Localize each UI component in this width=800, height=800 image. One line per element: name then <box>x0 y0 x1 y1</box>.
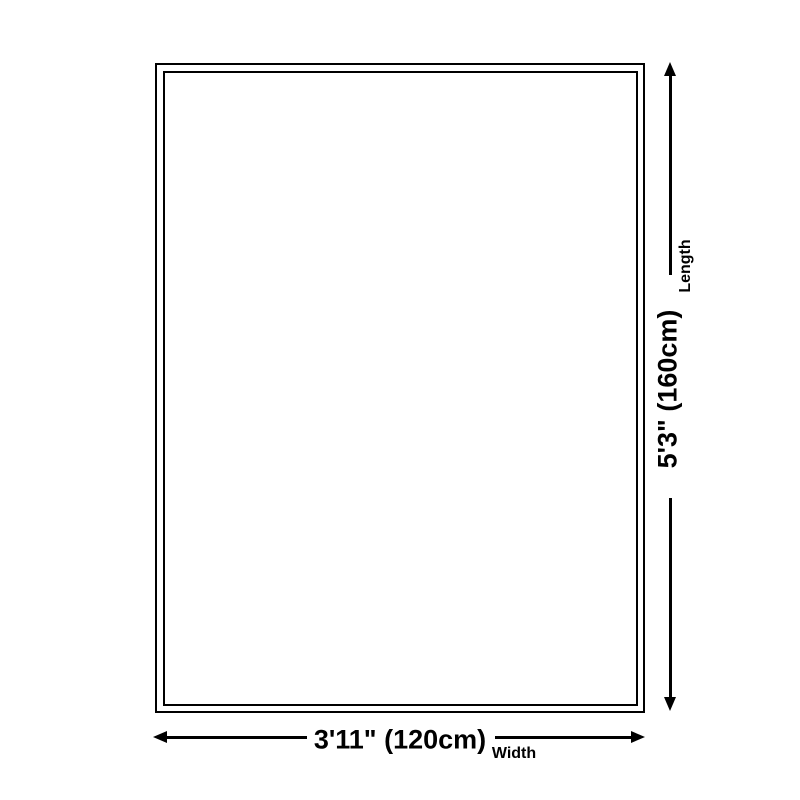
length-dimension-line-bottom <box>669 498 672 697</box>
length-label: Length <box>677 239 695 292</box>
rug-dimension-diagram: Length 5'3" (160cm) 3'11" (120cm) Width <box>0 0 800 800</box>
width-dimension-line-right <box>495 736 632 739</box>
arrow-right-icon <box>631 731 645 743</box>
arrow-left-icon <box>153 731 167 743</box>
width-value: 3'11" (120cm) <box>314 725 486 756</box>
arrow-down-icon <box>664 697 676 711</box>
width-label: Width <box>492 745 536 763</box>
length-dimension-line-top <box>669 75 672 275</box>
rug-outline-inner <box>163 71 638 706</box>
length-value: 5'3" (160cm) <box>653 310 684 469</box>
arrow-up-icon <box>664 62 676 76</box>
rug-outline-outer <box>155 63 645 713</box>
width-dimension-line-left <box>166 736 307 739</box>
